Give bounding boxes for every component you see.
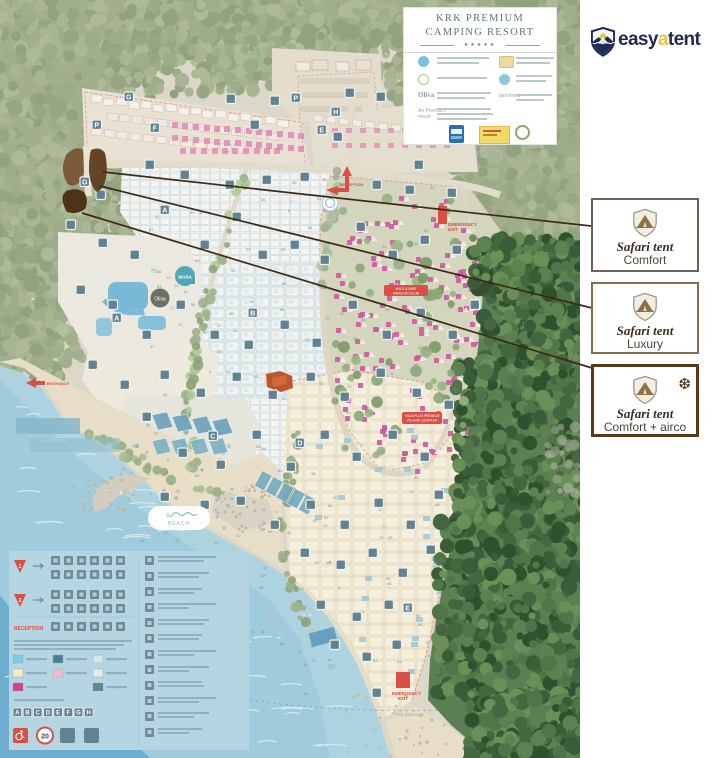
- svg-text:27: 27: [379, 449, 384, 454]
- svg-text:43: 43: [428, 653, 433, 658]
- svg-text:90: 90: [313, 518, 318, 523]
- svg-text:76: 76: [310, 644, 315, 649]
- svg-text:58: 58: [311, 471, 316, 476]
- svg-text:54: 54: [414, 241, 419, 246]
- svg-text:83: 83: [280, 641, 285, 646]
- svg-text:86: 86: [195, 473, 200, 478]
- svg-text:2: 2: [19, 598, 22, 604]
- svg-text:46: 46: [140, 538, 145, 543]
- svg-text:41: 41: [300, 586, 305, 591]
- svg-text:39: 39: [161, 412, 166, 417]
- svg-text:79: 79: [325, 316, 330, 321]
- svg-text:C: C: [210, 433, 215, 440]
- svg-text:48: 48: [304, 691, 309, 696]
- svg-text:74: 74: [379, 535, 384, 540]
- svg-text:63: 63: [373, 658, 378, 663]
- svg-text:68: 68: [414, 475, 419, 480]
- svg-text:31: 31: [430, 185, 435, 190]
- svg-text:18: 18: [164, 470, 169, 475]
- svg-text:22: 22: [352, 366, 357, 371]
- svg-text:89: 89: [278, 468, 283, 473]
- svg-text:84: 84: [319, 381, 324, 386]
- svg-text:68: 68: [261, 573, 266, 578]
- svg-text:75: 75: [311, 658, 316, 663]
- svg-text:36: 36: [218, 430, 223, 435]
- svg-text:F: F: [153, 125, 158, 132]
- svg-text:30: 30: [157, 269, 162, 274]
- svg-text:A: A: [162, 207, 167, 214]
- svg-text:G: G: [76, 711, 81, 717]
- svg-text:68: 68: [256, 444, 261, 449]
- svg-text:54: 54: [191, 302, 196, 307]
- svg-text:51: 51: [397, 659, 402, 664]
- svg-text:WILD & BIKE: WILD & BIKE: [395, 287, 417, 291]
- svg-text:39: 39: [353, 336, 358, 341]
- svg-text:RECEPTION: RECEPTION: [340, 182, 363, 187]
- svg-text:76: 76: [178, 322, 183, 327]
- svg-text:Oliva: Oliva: [154, 297, 166, 303]
- svg-text:VILLAGE QUARTER: VILLAGE QUARTER: [407, 419, 438, 423]
- svg-text:PAVILION CLUB: PAVILION CLUB: [393, 292, 420, 296]
- svg-text:72: 72: [221, 451, 226, 456]
- svg-text:19: 19: [272, 634, 277, 639]
- svg-text:33: 33: [226, 369, 231, 374]
- svg-text:B: B: [25, 711, 30, 717]
- svg-text:P: P: [94, 122, 99, 129]
- svg-text:25: 25: [323, 523, 328, 528]
- svg-text:A: A: [15, 711, 20, 717]
- svg-text:18: 18: [326, 560, 331, 565]
- svg-text:92: 92: [449, 305, 454, 310]
- svg-text:16: 16: [249, 299, 254, 304]
- svg-text:53: 53: [157, 284, 162, 289]
- svg-text:57: 57: [226, 426, 231, 431]
- svg-text:15: 15: [214, 540, 219, 545]
- svg-text:44: 44: [287, 530, 292, 535]
- svg-text:56: 56: [261, 197, 266, 202]
- svg-text:15: 15: [183, 289, 188, 294]
- svg-text:28: 28: [229, 311, 234, 316]
- svg-text:MASA: MASA: [178, 275, 192, 280]
- svg-text:54: 54: [151, 267, 156, 272]
- svg-text:22: 22: [381, 465, 386, 470]
- svg-text:77: 77: [170, 306, 175, 311]
- svg-text:72: 72: [382, 524, 387, 529]
- svg-text:D: D: [46, 711, 51, 717]
- svg-text:93: 93: [388, 535, 393, 540]
- svg-text:98: 98: [414, 362, 419, 367]
- svg-text:42: 42: [315, 560, 320, 565]
- svg-text:EXIT: EXIT: [448, 227, 458, 232]
- svg-text:27: 27: [154, 431, 159, 436]
- svg-text:71: 71: [163, 530, 168, 535]
- svg-text:B: B: [250, 310, 255, 317]
- svg-text:52: 52: [305, 337, 310, 342]
- svg-text:95: 95: [195, 258, 200, 263]
- svg-text:71: 71: [346, 376, 351, 381]
- svg-text:G: G: [82, 179, 88, 186]
- svg-text:C: C: [36, 711, 41, 717]
- svg-text:96: 96: [259, 585, 264, 590]
- svg-text:13: 13: [166, 275, 171, 280]
- svg-text:25: 25: [322, 177, 327, 182]
- svg-text:ENTRANCE: ENTRANCE: [47, 381, 70, 386]
- svg-text:VILLA PLUS PREMIUM: VILLA PLUS PREMIUM: [405, 414, 440, 418]
- svg-text:77: 77: [424, 258, 429, 263]
- svg-text:EXIT: EXIT: [398, 696, 408, 701]
- svg-text:15: 15: [303, 662, 308, 667]
- svg-text:51: 51: [155, 214, 160, 219]
- svg-text:12: 12: [261, 507, 266, 512]
- svg-text:68: 68: [435, 502, 440, 507]
- svg-text:53: 53: [418, 345, 423, 350]
- svg-text:86: 86: [328, 503, 333, 508]
- svg-text:G: G: [126, 94, 132, 101]
- svg-text:34: 34: [308, 225, 313, 230]
- svg-text:21: 21: [233, 328, 238, 333]
- svg-text:A: A: [114, 315, 119, 322]
- svg-text:93: 93: [382, 244, 387, 249]
- svg-text:97: 97: [150, 344, 155, 349]
- svg-text:19: 19: [174, 283, 179, 288]
- svg-text:25: 25: [453, 387, 458, 392]
- svg-text:80: 80: [344, 445, 349, 450]
- svg-text:36: 36: [217, 424, 222, 429]
- svg-text:56: 56: [280, 307, 285, 312]
- svg-text:E: E: [319, 127, 324, 134]
- svg-text:90: 90: [190, 210, 195, 215]
- svg-text:82: 82: [282, 396, 287, 401]
- svg-text:30: 30: [217, 349, 222, 354]
- svg-text:10: 10: [297, 649, 302, 654]
- svg-text:H: H: [87, 711, 91, 717]
- svg-text:RECEPTION: RECEPTION: [14, 626, 44, 632]
- svg-text:80: 80: [254, 374, 259, 379]
- svg-text:59: 59: [333, 495, 338, 500]
- svg-text:FKK BEACH: FKK BEACH: [396, 712, 419, 717]
- svg-text:89: 89: [346, 410, 351, 415]
- svg-text:92: 92: [324, 515, 329, 520]
- svg-text:35: 35: [385, 307, 390, 312]
- svg-text:BEACH: BEACH: [168, 521, 190, 527]
- svg-text:12: 12: [425, 640, 430, 645]
- svg-text:H: H: [333, 109, 338, 116]
- svg-text:56: 56: [163, 392, 168, 397]
- svg-text:32: 32: [141, 312, 146, 317]
- svg-text:82: 82: [282, 281, 287, 286]
- svg-text:50: 50: [416, 613, 421, 618]
- svg-text:F: F: [66, 711, 70, 717]
- svg-text:83: 83: [340, 311, 345, 316]
- svg-text:E: E: [405, 605, 410, 612]
- svg-text:32: 32: [217, 323, 222, 328]
- svg-text:36: 36: [261, 446, 266, 451]
- svg-text:32: 32: [347, 384, 352, 389]
- svg-text:48: 48: [292, 180, 297, 185]
- svg-text:99: 99: [231, 268, 236, 273]
- svg-text:99: 99: [203, 330, 208, 335]
- svg-text:E: E: [56, 711, 60, 717]
- svg-text:14: 14: [146, 471, 151, 476]
- svg-text:85: 85: [361, 317, 366, 322]
- svg-text:20: 20: [41, 734, 49, 741]
- svg-text:34: 34: [433, 560, 438, 565]
- svg-text:95: 95: [281, 247, 286, 252]
- svg-text:D: D: [297, 440, 302, 447]
- svg-text:73: 73: [409, 489, 414, 494]
- svg-text:20: 20: [236, 533, 241, 538]
- svg-text:85: 85: [418, 622, 423, 627]
- svg-text:65: 65: [424, 228, 429, 233]
- svg-text:1: 1: [19, 564, 22, 570]
- svg-text:95: 95: [289, 454, 294, 459]
- svg-text:10: 10: [303, 492, 308, 497]
- svg-text:81: 81: [149, 227, 154, 232]
- svg-text:68: 68: [387, 581, 392, 586]
- svg-text:57: 57: [276, 494, 281, 499]
- svg-text:36: 36: [327, 657, 332, 662]
- svg-text:P: P: [293, 95, 298, 102]
- svg-text:23: 23: [246, 247, 251, 252]
- svg-text:25: 25: [187, 378, 192, 383]
- svg-text:16: 16: [188, 372, 193, 377]
